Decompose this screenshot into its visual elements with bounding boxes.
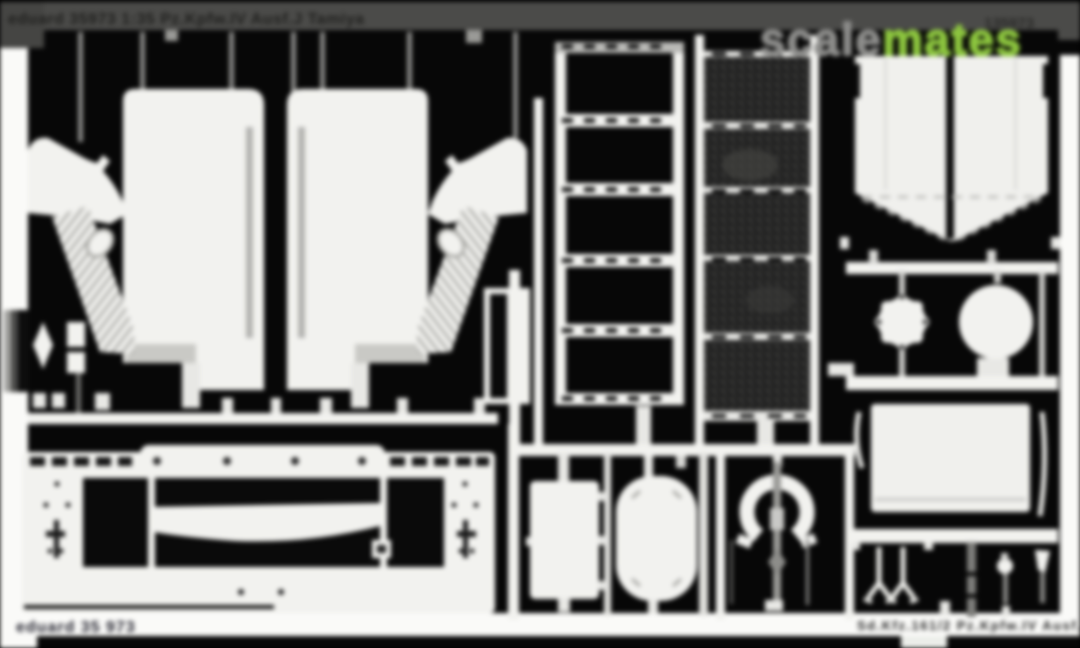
svg-text:eduard 35973 1:35 Pz.Kpfw.IV: eduard 35973 1:35 Pz.Kpfw.IV Ausf.J Tami… bbox=[8, 11, 365, 28]
svg-text:Sd.Kfz.161/2 Pz.Kpfw.IV Ausf.J: Sd.Kfz.161/2 Pz.Kpfw.IV Ausf.J bbox=[857, 618, 1080, 633]
svg-text:scalemates: scalemates bbox=[760, 14, 1023, 65]
svg-text:eduard 35 973: eduard 35 973 bbox=[16, 619, 136, 636]
